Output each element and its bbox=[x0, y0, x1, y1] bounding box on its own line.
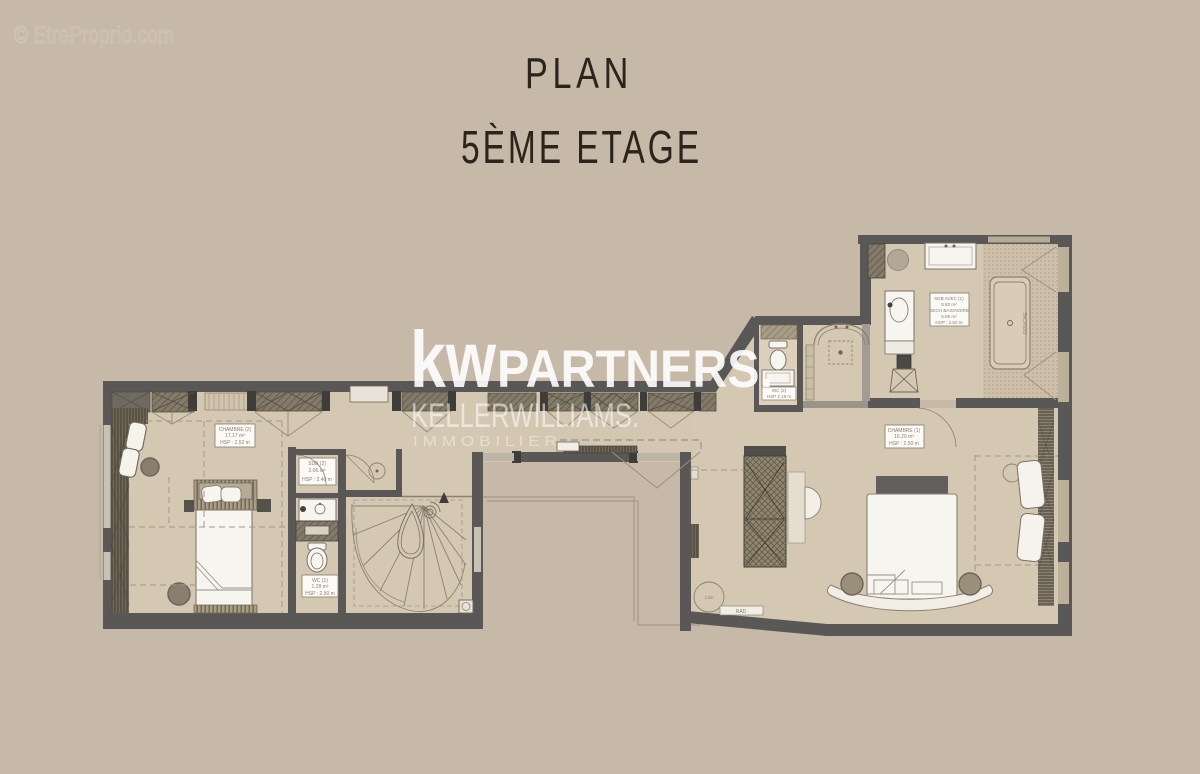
svg-text:WC (2): WC (2) bbox=[772, 388, 787, 393]
svg-text:PLAN: PLAN bbox=[525, 49, 633, 98]
svg-text:© EtreProprio.com: © EtreProprio.com bbox=[14, 22, 174, 49]
svg-text:HSP : 2.52 m: HSP : 2.52 m bbox=[220, 440, 250, 446]
svg-text:5ÈME ETAGE: 5ÈME ETAGE bbox=[461, 121, 702, 173]
svg-text:17.17 m²: 17.17 m² bbox=[225, 433, 245, 439]
svg-text:kw: kw bbox=[410, 315, 497, 404]
svg-text:PARTNERS.: PARTNERS. bbox=[497, 340, 773, 399]
svg-text:8.80 m²: 8.80 m² bbox=[941, 302, 957, 307]
svg-text:RAD: RAD bbox=[736, 609, 747, 615]
svg-text:HSP : 2.50 m: HSP : 2.50 m bbox=[889, 441, 919, 447]
svg-text:5.85 m²: 5.85 m² bbox=[941, 314, 957, 319]
svg-text:DECH BAIGNOIRE: DECH BAIGNOIRE bbox=[929, 308, 969, 313]
svg-text:HSP : 2.40 m: HSP : 2.40 m bbox=[302, 477, 332, 483]
svg-text:DOUCHE: DOUCHE bbox=[1023, 312, 1029, 334]
svg-text:HSP : 2.50 m: HSP : 2.50 m bbox=[935, 320, 962, 325]
svg-text:I M M O B I L I E R: I M M O B I L I E R bbox=[413, 433, 557, 450]
svg-text:16.20 m²: 16.20 m² bbox=[894, 434, 914, 440]
svg-text:KELLERWILLIAMS.: KELLERWILLIAMS. bbox=[411, 397, 639, 435]
svg-text:Clim: Clim bbox=[705, 595, 714, 600]
svg-text:HSP : 2.50 m: HSP : 2.50 m bbox=[305, 591, 335, 597]
svg-text:SDB AVEC (1): SDB AVEC (1) bbox=[934, 296, 964, 301]
svg-text:1.28 m²: 1.28 m² bbox=[312, 584, 329, 590]
